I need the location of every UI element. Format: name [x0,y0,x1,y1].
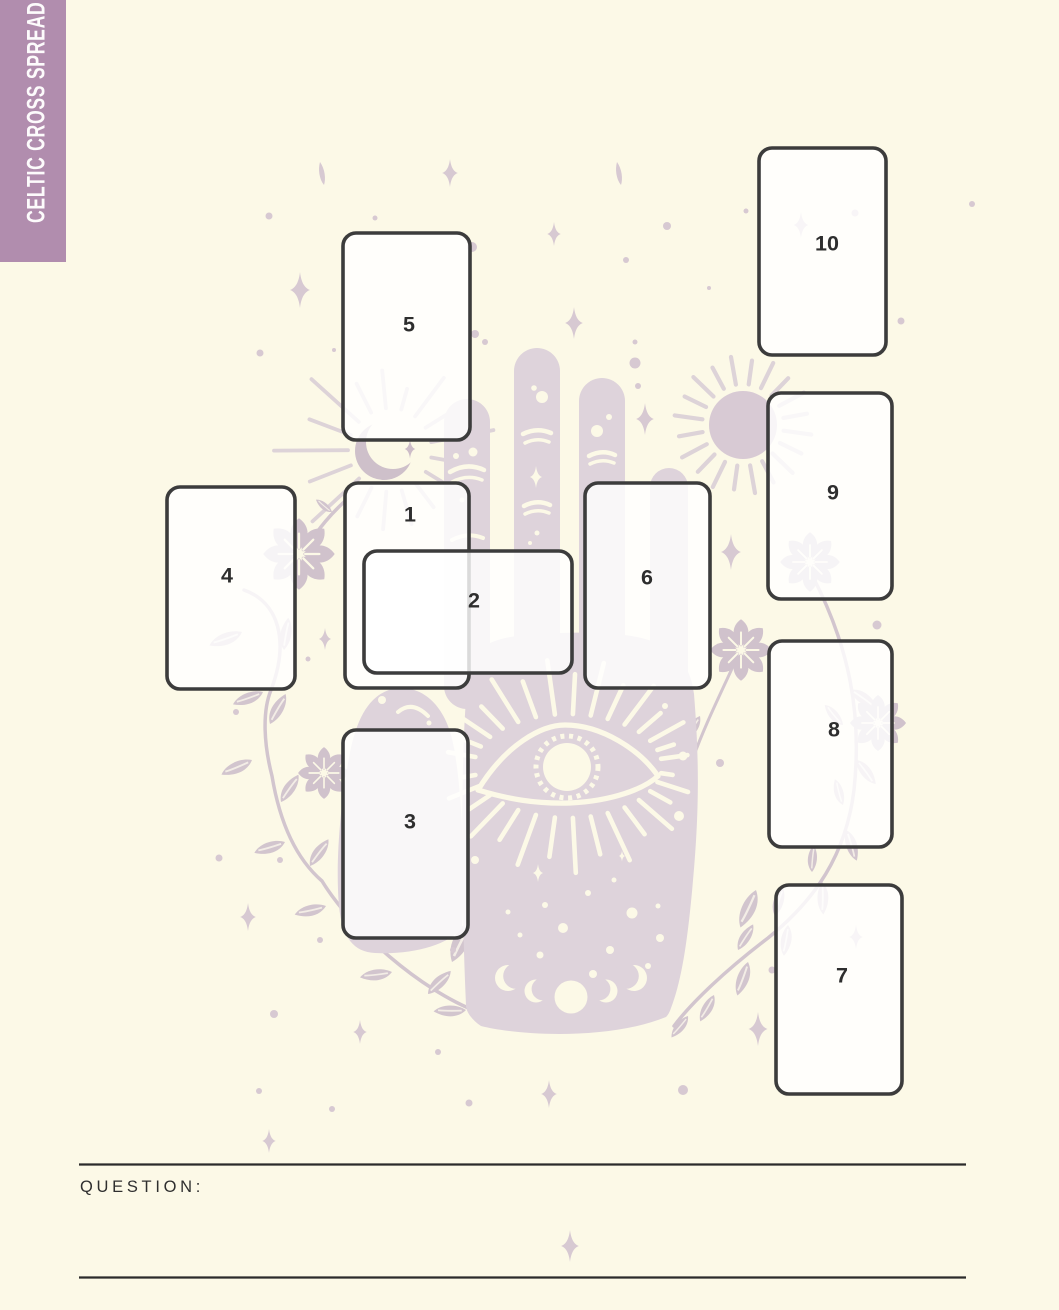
svg-text:4: 4 [221,564,233,588]
svg-text:2: 2 [468,589,480,613]
svg-text:5: 5 [403,313,415,337]
svg-text:6: 6 [641,566,653,590]
svg-text:8: 8 [828,718,840,742]
svg-text:3: 3 [404,810,416,834]
svg-text:7: 7 [836,964,848,988]
svg-text:QUESTION:: QUESTION: [80,1178,204,1196]
svg-text:10: 10 [815,232,839,256]
svg-text:1: 1 [404,503,416,527]
svg-text:CELTIC CROSS SPREAD: CELTIC CROSS SPREAD [21,2,50,223]
svg-text:9: 9 [827,481,839,505]
